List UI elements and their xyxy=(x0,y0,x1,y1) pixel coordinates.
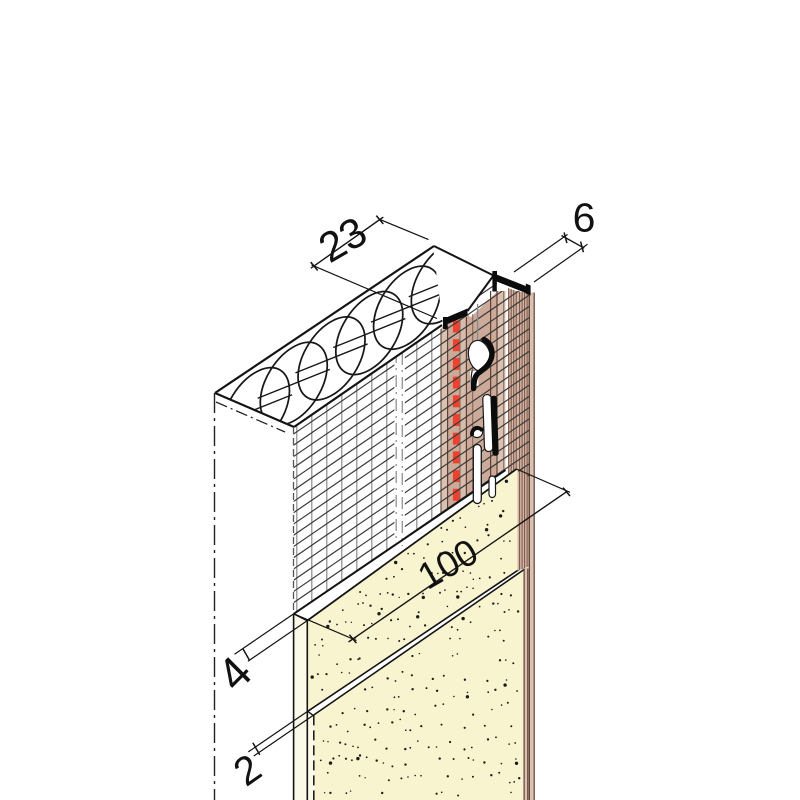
svg-text:6: 6 xyxy=(573,194,596,240)
